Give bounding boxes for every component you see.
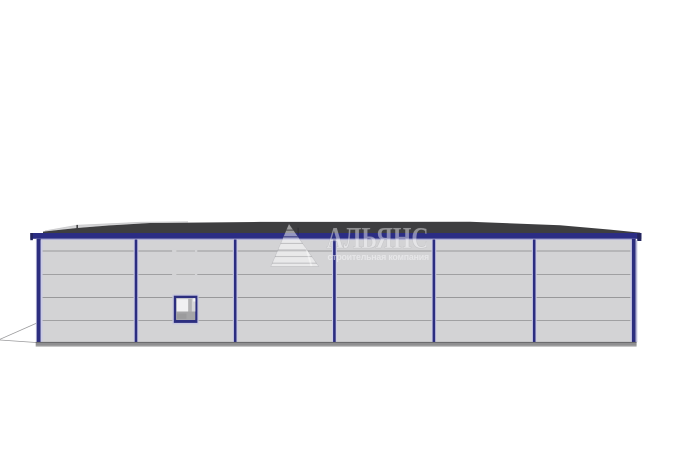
svg-text:АЛЬЯНС: АЛЬЯНС	[327, 221, 429, 255]
svg-text:строительная компания: строительная компания	[328, 252, 430, 262]
